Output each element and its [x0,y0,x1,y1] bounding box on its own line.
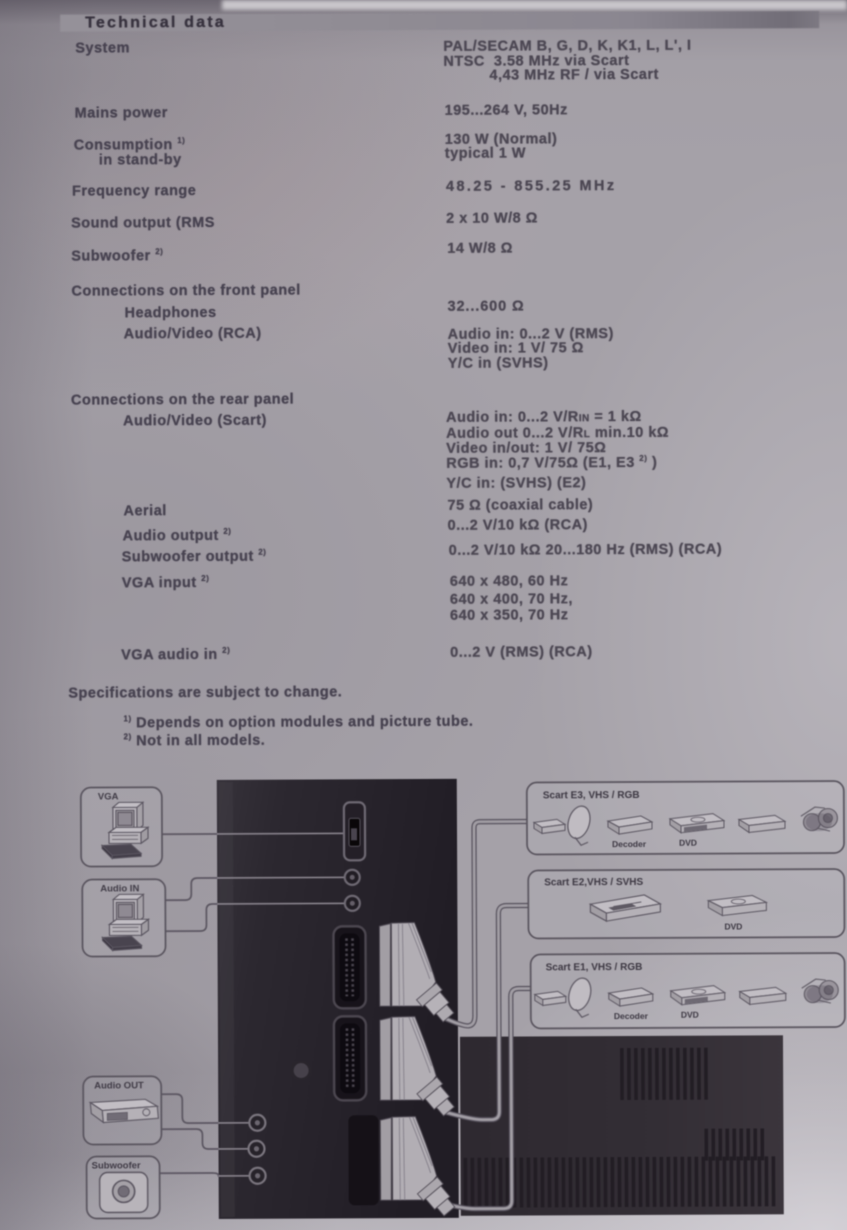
svg-text:DVD: DVD [724,921,742,931]
svg-text:Scart E1, VHS / RGB: Scart E1, VHS / RGB [546,962,643,973]
svg-text:Audio OUT: Audio OUT [94,1080,144,1091]
svg-text:Subwoofer: Subwoofer [92,1160,141,1171]
svg-text:Audio IN: Audio IN [100,883,139,894]
svg-text:Scart E2,VHS / SVHS: Scart E2,VHS / SVHS [544,877,643,888]
svg-text:DVD: DVD [679,838,697,848]
svg-text:DVD: DVD [681,1010,699,1020]
svg-text:Scart E3, VHS / RGB: Scart E3, VHS / RGB [543,790,640,801]
svg-text:Decoder: Decoder [614,1011,649,1021]
svg-text:Decoder: Decoder [612,839,647,849]
svg-text:VGA: VGA [98,791,119,802]
